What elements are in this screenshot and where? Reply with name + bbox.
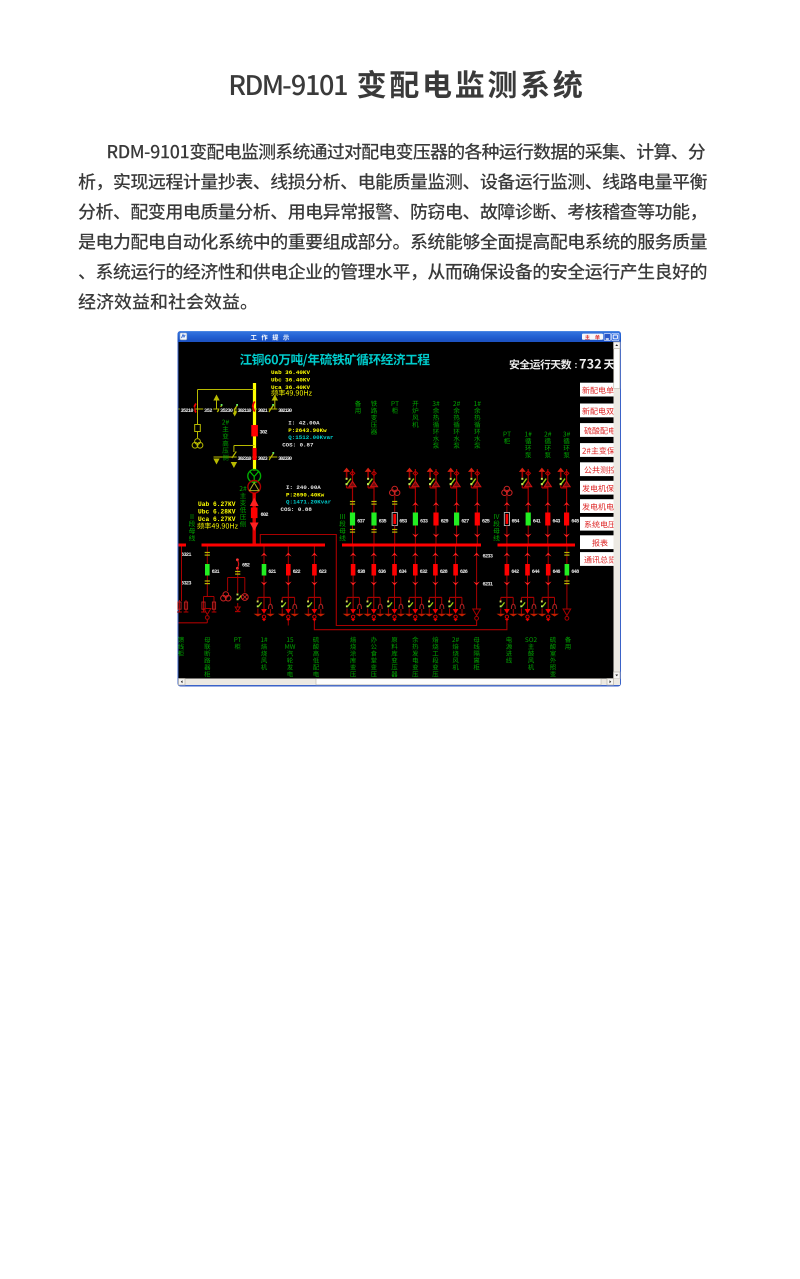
- svg-text:644: 644: [532, 569, 540, 575]
- svg-text:628: 628: [440, 569, 448, 575]
- svg-text:642: 642: [511, 569, 519, 575]
- svg-text:631: 631: [212, 569, 220, 575]
- svg-text:633: 633: [420, 518, 428, 524]
- svg-text:652: 652: [242, 563, 250, 569]
- svg-text:Uab 6.27KV: Uab 6.27KV: [198, 501, 236, 508]
- svg-text:602: 602: [261, 512, 269, 518]
- svg-text:645: 645: [571, 518, 579, 524]
- svg-text:622: 622: [293, 569, 301, 575]
- svg-text:35210: 35210: [181, 408, 194, 414]
- svg-text:646: 646: [553, 569, 561, 575]
- svg-text:3021: 3021: [258, 408, 268, 414]
- svg-text::: :: [573, 361, 578, 371]
- svg-text:653: 653: [399, 518, 407, 524]
- svg-text:648: 648: [571, 569, 579, 575]
- svg-text:302310: 302310: [238, 456, 252, 462]
- svg-text:6233: 6233: [483, 554, 494, 560]
- svg-text:637: 637: [357, 518, 365, 524]
- svg-text:302: 302: [260, 430, 268, 436]
- svg-text:35230: 35230: [220, 408, 233, 414]
- svg-text:6231: 6231: [483, 582, 494, 588]
- svg-text:634: 634: [399, 569, 407, 575]
- svg-text:632: 632: [420, 569, 428, 575]
- svg-text:COS: 0.87: COS: 0.87: [282, 441, 314, 448]
- svg-text:641: 641: [533, 518, 541, 524]
- svg-text:6321: 6321: [181, 552, 192, 558]
- svg-text:643: 643: [552, 518, 560, 524]
- svg-text:Uab 36.40KV: Uab 36.40KV: [271, 369, 310, 376]
- svg-text:626: 626: [460, 569, 468, 575]
- svg-text:625: 625: [482, 518, 490, 524]
- svg-text:636: 636: [378, 569, 386, 575]
- svg-text:352: 352: [204, 408, 213, 414]
- svg-text:638: 638: [357, 569, 365, 575]
- svg-text:I: 42.00A: I: 42.00A: [288, 420, 320, 427]
- svg-text:Ubc 36.40KV: Ubc 36.40KV: [271, 377, 310, 384]
- svg-text:302130: 302130: [278, 408, 292, 414]
- svg-text:P:2643.90Kw: P:2643.90Kw: [288, 427, 327, 434]
- svg-text:Uca 6.27KV: Uca 6.27KV: [198, 516, 236, 523]
- svg-text:621: 621: [268, 569, 276, 575]
- svg-text:623: 623: [319, 569, 327, 575]
- svg-text:COS: 0.88: COS: 0.88: [281, 506, 313, 513]
- svg-text:654: 654: [512, 518, 520, 524]
- svg-text:Ubc 6.28KV: Ubc 6.28KV: [198, 509, 236, 516]
- svg-text:3023: 3023: [258, 456, 268, 462]
- svg-text:Q:1512.00Kvar: Q:1512.00Kvar: [288, 434, 334, 441]
- svg-text:635: 635: [379, 518, 387, 524]
- svg-text:6323: 6323: [181, 581, 192, 587]
- svg-text:I: 240.00A: I: 240.00A: [286, 484, 321, 491]
- svg-text:302110: 302110: [238, 408, 252, 414]
- svg-text:P:2690.40Kw: P:2690.40Kw: [286, 491, 325, 498]
- svg-text:629: 629: [441, 518, 449, 524]
- svg-text:302330: 302330: [278, 456, 292, 462]
- svg-text:Q:1471.20Kvar: Q:1471.20Kvar: [286, 499, 332, 506]
- svg-text:627: 627: [461, 518, 469, 524]
